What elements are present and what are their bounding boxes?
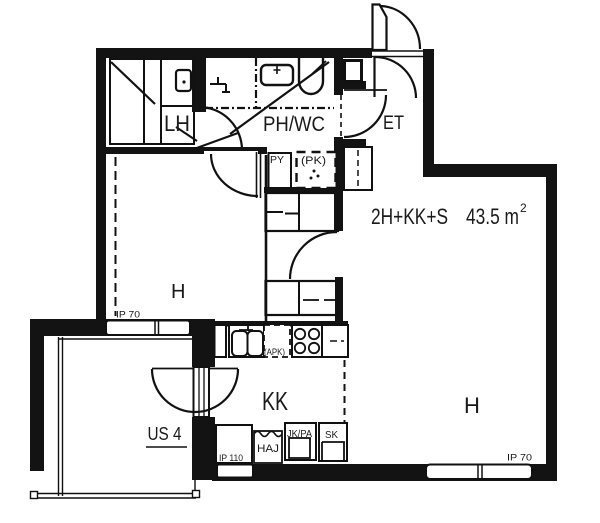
svg-text:H: H xyxy=(464,393,480,418)
svg-text:(APK): (APK) xyxy=(264,347,285,358)
svg-text:PY: PY xyxy=(270,155,284,166)
svg-text:43.5 m: 43.5 m xyxy=(466,204,519,229)
svg-text:IP 70: IP 70 xyxy=(507,453,532,464)
svg-text:US 4: US 4 xyxy=(148,424,182,444)
svg-text:HAJ: HAJ xyxy=(257,443,279,455)
svg-text:ET: ET xyxy=(383,113,404,134)
svg-text:IP 110: IP 110 xyxy=(219,453,243,464)
svg-text:2H+KK+S: 2H+KK+S xyxy=(371,204,448,229)
svg-text:PH/WC: PH/WC xyxy=(263,113,325,136)
svg-text:LH: LH xyxy=(164,111,190,136)
svg-text:2: 2 xyxy=(520,201,527,215)
svg-text:SK: SK xyxy=(325,429,338,441)
svg-text:H: H xyxy=(171,281,185,303)
svg-text:IP 70: IP 70 xyxy=(116,310,140,321)
svg-text:(PK): (PK) xyxy=(301,155,326,167)
svg-text:KK: KK xyxy=(262,386,288,416)
